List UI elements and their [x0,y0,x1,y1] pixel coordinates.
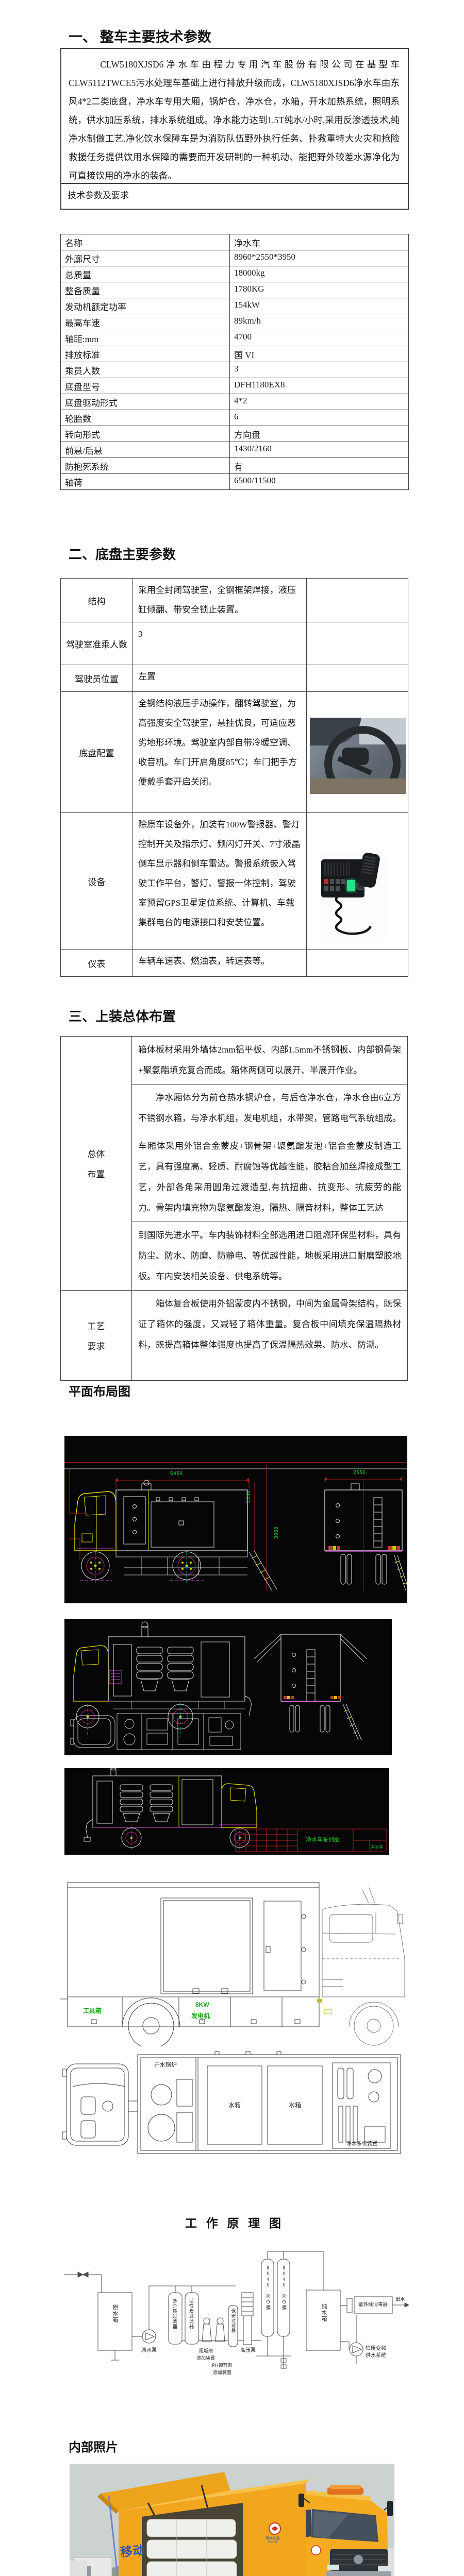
line-drawing-top: 开水锅炉 水箱 水箱 净水系统装置 [60,2049,409,2159]
spec-label: 名称 [61,234,230,250]
row-text: 采用全封闭驾驶室，全钢框架焊接，液压缸倾翻、带安全锁止装置。 [133,579,307,622]
chassis-table: 结构 采用全封闭驾驶室，全钢框架焊接，液压缸倾翻、带安全锁止装置。 驾驶室准乘人… [60,578,408,977]
intro-box: CLW5180XJSD6净水车由程力专用汽车股份有限公司在基型车CLW5112T… [60,48,409,210]
row-text: 3 [133,622,307,665]
label-water-tank-1: 水箱 [228,2102,241,2108]
spec-label: 整备质量 [61,282,230,298]
label-supply-2: 供水系统 [366,2353,386,2359]
table-row: 总质量 18000kg [61,266,409,282]
photos-title: 内部照片 [69,2437,118,2455]
spec-label: 底盘驱动形式 [61,394,230,410]
table-row: 转向形式 方向盘 [61,426,409,442]
label-ro-2: 8040 RO膜 [281,2265,288,2310]
spec-label: 底盘型号 [61,378,230,394]
principle-title: 工 作 原 理 图 [60,2213,409,2231]
table-row: 发动机额定功率 154kW [61,298,409,314]
photo1-logo-cn: 河南应急 [266,2536,280,2541]
table-row: 底盘驱动形式 4*2 [61,394,409,410]
table-row: 轴荷 6500/11500 [61,474,409,490]
line-drawing-side: 工具箱 8KW 发电机 [60,1876,409,2046]
spec-value: 1430/2160 [230,442,409,458]
spec-value: 8960*2550*3950 [230,250,409,266]
spec-label: 总质量 [61,266,230,282]
row-image-cell [307,579,408,622]
row-label: 底盘配置 [61,692,133,813]
plan-layout-title: 平面布局图 [69,1381,130,1399]
spec-label: 前悬/后悬 [61,442,230,458]
table-row: 名称 净水车 [61,234,409,250]
vehicle-spec-table: 名称 净水车 外廓尺寸 8960*2550*3950 总质量 18000kg 整… [60,234,409,490]
spec-value: 3 [230,362,409,378]
section1-title: 一、 整车主要技术参数 [69,26,211,46]
table-row: 设备 除原车设备外，加装有100W警报器、警灯控制开关及指示灯、频闪灯开关、7寸… [61,813,408,950]
vehicle-spec-rows: 名称 净水车 外廓尺寸 8960*2550*3950 总质量 18000kg 整… [61,234,409,490]
label-pure-tank: 纯水箱 [320,2303,328,2322]
mic-cord [320,893,387,939]
spec-value: 有 [230,458,409,474]
row-label: 驾驶室准乘人数 [61,622,133,665]
spec-value: 6 [230,410,409,426]
label-guard-filter: 保安过滤器 [230,2309,237,2333]
spec-value: 4*2 [230,394,409,410]
table-row: 工艺 要求 箱体复合板使用外铝蒙皮内不锈钢，中间为金属骨架结构，既保证了箱体的强… [61,1291,408,1381]
table-row: 外廓尺寸 8960*2550*3950 [61,250,409,266]
row-text: 箱体复合板使用外铝蒙皮内不锈钢，中间为金属骨架结构，既保证了箱体的强度，又减轻了… [132,1291,408,1381]
table-row: 防抱死系统 有 [61,458,409,474]
label-generator-kw: 8KW [195,2001,209,2008]
dim-2550: 2550 [353,1470,366,1476]
table-row: 排放标准 国 VI [61,346,409,362]
row-text: 全钢结构液压手动操作，翻转驾驶室，为高强度安全驾驶室，悬挂优良，可适应恶劣地形环… [133,692,307,813]
cad3-linework [64,1768,389,1855]
table-row: 整备质量 1780KG [61,282,409,298]
table-row: 轮胎数 6 [61,410,409,426]
intro-paragraph: CLW5180XJSD6净水车由程力专用汽车股份有限公司在基型车CLW5112T… [61,49,408,183]
spec-value: 方向盘 [230,426,409,442]
document-page: 一、 整车主要技术参数 CLW5180XJSD6净水车由程力专用汽车股份有限公司… [0,0,464,2576]
row-label: 驾驶员位置 [61,665,133,692]
cad1-linework [64,1436,407,1603]
titleblock-title: 净水车系列图 [306,1837,340,1842]
label-antiscalant-2: 添加装置 [196,2355,215,2361]
tech-requirement-row: 技术参数及要求 [61,183,408,209]
label-ph-doser-1: PH调节剂 [212,2362,233,2368]
section2-title: 二、底盘主要参数 [69,544,176,563]
craft-label: 工艺 要求 [61,1291,132,1381]
cad2-linework [64,1619,392,1755]
cad-drawing-equipment [64,1619,392,1755]
table-row: 前悬/后悬 1430/2160 [61,442,409,458]
titleblock-small-text: 净水车 [371,1844,383,1850]
spec-label: 排放标准 [61,346,230,362]
spec-label: 乘员人数 [61,362,230,378]
spec-value: 6500/11500 [230,474,409,490]
spec-label: 轮胎数 [61,410,230,426]
siren-control-photo [320,852,387,939]
table-row: 仪表 车辆车速表、燃油表，转速表等。 [61,950,408,977]
spec-label: 轴荷 [61,474,230,490]
label-hp-pump: 高压泵 [240,2348,256,2354]
table-row: 底盘配置 全钢结构液压手动操作，翻转驾驶室，为高强度安全驾驶室，悬挂优良，可适应… [61,692,408,813]
steering-wheel-photo [310,718,406,794]
spec-label: 轴距:mm [61,330,230,346]
label-water-tank-2: 水箱 [289,2102,301,2108]
spec-value: 4700 [230,330,409,346]
photo1-box-text: 移动 [119,2540,145,2561]
label-raw-tank: 原水箱 [111,2304,119,2323]
cad-drawing-mirrored: 净水车系列图 净水车 [64,1768,389,1855]
spec-value: DFH1180EX8 [230,378,409,394]
row-text: 箱体板材采用外墙体2mm铝平板、内部1.5mm不锈钢板、内部钢骨架+聚氨酯填充复… [132,1037,408,1084]
spec-label: 外廓尺寸 [61,250,230,266]
row-text: 左置 [133,665,307,692]
photo1-scene [70,2464,394,2576]
table-row: 轴距:mm 4700 [61,330,409,346]
label-uv: 紫外线消毒器 [358,2302,388,2308]
dim-6450: 6450 [170,1471,183,1477]
spec-label: 转向形式 [61,426,230,442]
dim-3950: 3950 [274,1527,279,1539]
sideview-linework [60,1876,409,2046]
row-label: 仪表 [61,950,133,977]
row-text: 净水厢体分为前仓热水锅炉仓，与后仓净水仓，净水仓由6立方不锈钢水箱，与净水机组，… [132,1084,408,1222]
label-supply-1: 恒压变频 [366,2346,386,2352]
table-row: 乘员人数 3 [61,362,409,378]
spec-value: 1780KG [230,282,409,298]
row-label: 设备 [61,813,133,950]
cad-drawing-side-rear: 6450 2550 2240 3950 [64,1436,407,1603]
section3-title: 三、上装总体布置 [69,1006,176,1025]
spec-value: 国 VI [230,346,409,362]
process-flow-diagram: 原水箱 原水泵 多介质过滤器 活性炭过滤器 阻垢剂 添加装置 PH调节剂 添加装… [60,2239,409,2388]
label-ph-doser-2: 添加装置 [213,2369,231,2376]
photo-truck-front-open: 移动 河南应急 HNEM [70,2464,394,2576]
table-row: 总体 布置 箱体板材采用外墙体2mm铝平板、内部1.5mm不锈钢板、内部钢骨架+… [61,1037,408,1084]
table-row: 驾驶室准乘人数 3 [61,622,408,665]
label-raw-pump: 原水泵 [141,2348,157,2354]
label-toolbox: 工具箱 [83,2006,102,2015]
dim-2240: 2240 [246,1490,252,1503]
photo1-logo-en: HNEM [268,2541,277,2544]
label-ro-1: 8040 RO膜 [265,2265,272,2310]
table-row: 驾驶员位置 左置 [61,665,408,692]
body-layout-table: 总体 布置 箱体板材采用外墙体2mm铝平板、内部1.5mm不锈钢板、内部钢骨架+… [60,1036,408,1381]
spec-value: 净水车 [230,234,409,250]
spec-label: 防抱死系统 [61,458,230,474]
label-outlet: 出水 [395,2296,405,2302]
label-generator: 发电机 [191,2011,210,2020]
row-text: 车辆车速表、燃油表，转速表等。 [133,950,307,977]
label-carbon-filter: 活性炭过滤器 [188,2298,195,2329]
overall-layout-label: 总体 布置 [61,1037,132,1291]
table-row: 结构 采用全封闭驾驶室，全钢框架焊接，液压缸倾翻、带安全锁止装置。 [61,579,408,622]
label-media-filter: 多介质过滤器 [172,2298,178,2329]
spec-label: 发动机额定功率 [61,298,230,314]
spec-value: 18000kg [230,266,409,282]
label-purify-system: 净水系统装置 [346,2141,377,2147]
spec-value: 89km/h [230,314,409,330]
table-row: 底盘型号 DFH1180EX8 [61,378,409,394]
label-boiler: 开水锅炉 [154,2062,177,2068]
row-text: 除原车设备外，加装有100W警报器、警灯控制开关及指示灯、频闪灯开关、7寸液晶倒… [133,813,307,950]
spec-value: 154kW [230,298,409,314]
row-text: 到国际先进水平。车内装饰材料全部选用进口阻燃环保型材料，具有防尘、防水、防磨、防… [132,1222,408,1291]
label-antiscalant-1: 阻垢剂 [199,2348,213,2354]
table-row: 最高车速 89km/h [61,314,409,330]
spec-label: 最高车速 [61,314,230,330]
row-label: 结构 [61,579,133,622]
